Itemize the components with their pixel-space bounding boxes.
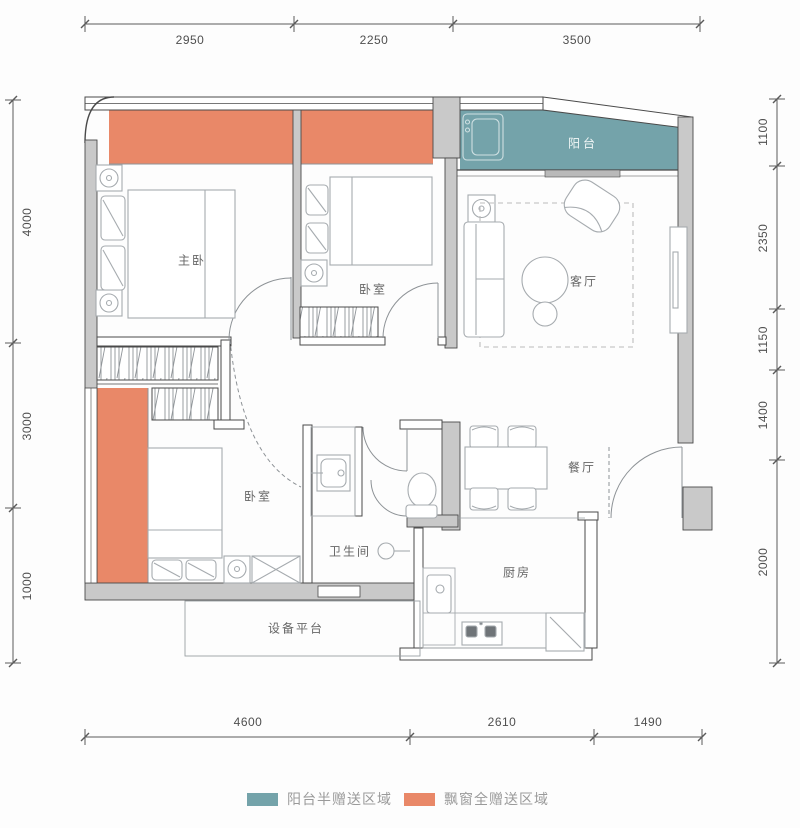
room-label-bedroom-bottom: 卧室: [244, 488, 272, 505]
wall-bottom: [85, 583, 420, 600]
legend-label-bay-window: 飘窗全赠送区域: [444, 789, 549, 809]
bedroom-bottom-bed: [148, 448, 300, 583]
dim-top-2: 2250: [360, 33, 389, 47]
dim-right-3: 1150: [756, 326, 770, 354]
room-label-bathroom: 卫生间: [329, 543, 371, 560]
bedroom-bottom-door-arc: [230, 340, 301, 487]
bedroom-top-wardrobe: [300, 307, 378, 337]
kitchen-sink: [427, 575, 451, 613]
wall-entry-post: [683, 487, 712, 530]
bedroom-bottom-closet: [152, 388, 218, 420]
bay-window-bedroom-top: [300, 110, 433, 164]
room-label-living-room: 客厅: [570, 273, 598, 290]
dim-right-1: 1100: [756, 118, 770, 146]
wall-master-divider: [293, 110, 301, 338]
furniture: [96, 114, 687, 656]
coffee-table: [522, 257, 568, 303]
legend-swatch-balcony: [247, 793, 278, 806]
floorplan-drawing: [0, 0, 800, 828]
shower-icon: [378, 543, 394, 559]
room-label-balcony: 阳台: [568, 135, 598, 152]
room-label-master-bedroom: 主卧: [178, 252, 206, 269]
legend-item-bay-window: 飘窗全赠送区域: [404, 789, 549, 809]
bay-window-bedroom-bottom: [97, 388, 148, 583]
room-label-dining-room: 餐厅: [568, 459, 596, 476]
room-label-equipment-platform: 设备平台: [268, 620, 324, 637]
dim-right-4: 1400: [756, 401, 770, 430]
bedroom-top-bed: [301, 177, 432, 286]
dining-set: [465, 426, 547, 510]
bedroom-top-door-arc: [383, 283, 438, 338]
dim-right-2: 2350: [756, 224, 770, 253]
stool: [533, 302, 557, 326]
bay-window-master: [109, 110, 293, 164]
legend-item-balcony: 阳台半赠送区域: [247, 789, 392, 809]
dim-top-1: 2950: [176, 33, 205, 47]
room-label-kitchen: 厨房: [503, 564, 531, 581]
dim-bottom-2: 2610: [488, 715, 517, 729]
wall-balcony-column: [433, 97, 460, 158]
entry-door-arc: [611, 447, 682, 518]
dim-right-5: 2000: [756, 548, 770, 577]
toilet: [408, 473, 436, 507]
master-door-arc: [229, 278, 291, 340]
floorplan-page: 主卧 卧室 阳台 客厅 餐厅 卧室 卫生间 厨房 设备平台 2950 2250 …: [0, 0, 800, 828]
wall-living-divider: [445, 158, 457, 348]
wall-bathroom-right: [442, 422, 460, 530]
dim-left-2: 3000: [20, 412, 34, 441]
dim-bottom-1: 4600: [234, 715, 263, 729]
tv: [673, 252, 678, 308]
living-room-furniture: [464, 175, 687, 347]
dining-table: [465, 447, 547, 489]
dim-left-3: 1000: [20, 572, 34, 601]
dim-bottom-3: 1490: [634, 715, 663, 729]
dim-top-3: 3500: [563, 33, 592, 47]
hall-closet: [97, 347, 218, 380]
shower-door-arc: [371, 480, 407, 516]
room-label-bedroom-top: 卧室: [359, 281, 387, 298]
legend-swatch-bay-window: [404, 793, 435, 806]
legend-label-balcony: 阳台半赠送区域: [287, 789, 392, 809]
armchair: [559, 175, 624, 237]
bathroom-door-arc: [363, 427, 407, 471]
dim-left-1: 4000: [20, 208, 34, 237]
master-bed: [96, 165, 235, 318]
